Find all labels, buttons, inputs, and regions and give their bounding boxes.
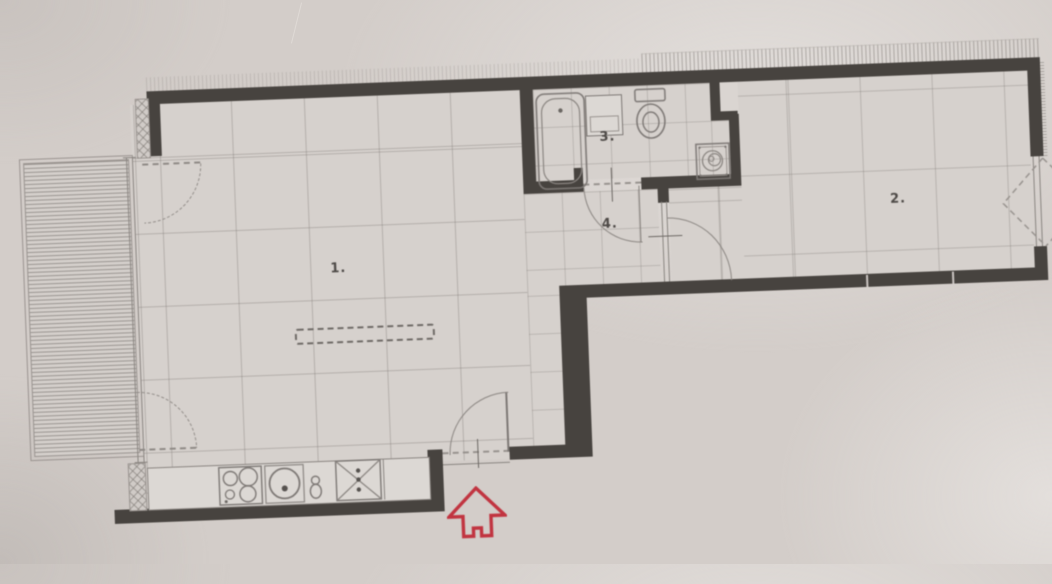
- room-label-living: 1.: [330, 261, 347, 277]
- floor-plan: 1. 2. 3. 4.: [0, 0, 1052, 584]
- entrance-outer-line: [443, 462, 510, 466]
- entrance-arrow-icon: [446, 485, 508, 539]
- wall-hatch-bottom-left: [128, 463, 148, 512]
- room-label-bedroom: 2.: [890, 191, 907, 207]
- toilet-icon: [633, 87, 669, 142]
- balcony-decking: [23, 159, 140, 457]
- floorplan-photo: { "title": "apartment-floor-plan", "room…: [0, 0, 1052, 564]
- wall-tick-a: [866, 275, 868, 287]
- shaft-niche: [719, 82, 738, 113]
- appliance-x-square-icon: [335, 459, 383, 502]
- faucet-icon: [307, 474, 324, 501]
- room-label-hallway: 4.: [602, 216, 619, 232]
- wall-entrance-right: [559, 285, 593, 458]
- stove-cooktop-icon: [218, 465, 263, 506]
- room-label-bathroom: 3.: [599, 129, 616, 145]
- balcony: [19, 155, 145, 461]
- wall-entrance-bottom: [509, 444, 592, 460]
- window-right-casement-icon: [985, 148, 1052, 256]
- kitchen-sink-icon: [264, 464, 305, 505]
- washing-machine-icon: [695, 142, 731, 180]
- wall-hatch-top-left: [135, 98, 151, 158]
- wall-tick-b: [952, 272, 954, 284]
- bathtub-icon: [535, 92, 589, 191]
